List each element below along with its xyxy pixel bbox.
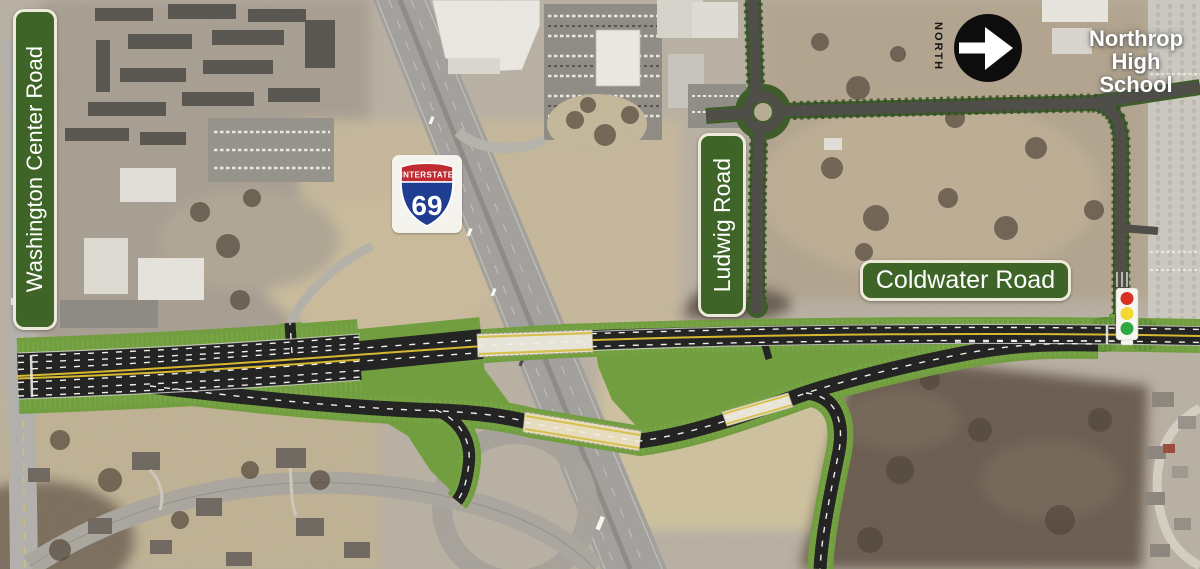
traffic-signal-icon [1115,288,1139,348]
north-arrow-graphic [952,12,1024,84]
road-label-coldwater-text: Coldwater Road [876,266,1055,295]
signal-red-light [1121,292,1134,305]
interstate-69-shield: INTERSTATE 69 [392,155,462,233]
road-label-ludwig: Ludwig Road [698,133,746,317]
signal-green-light [1121,322,1134,335]
road-label-coldwater: Coldwater Road [860,260,1071,301]
school-label-line1: Northrop [1076,27,1196,50]
north-label: NORTH [932,22,944,71]
aerial-map: .wd{stroke:#f2f2ee;stroke-width:1.4;stro… [0,0,1200,569]
road-label-ludwig-text: Ludwig Road [709,158,736,292]
school-label-line3: School [1076,73,1196,96]
north-arrow-icon: NORTH [928,8,1028,88]
school-label-line2: High [1076,50,1196,73]
signal-yellow-light [1121,307,1134,320]
shield-route-number: 69 [411,190,442,221]
place-label-northrop-high-school: Northrop High School [1076,27,1196,96]
shield-banner-text: INTERSTATE [400,171,453,180]
road-label-washington-center-text: Washington Center Road [22,46,48,292]
road-label-washington-center: Washington Center Road [13,9,57,330]
